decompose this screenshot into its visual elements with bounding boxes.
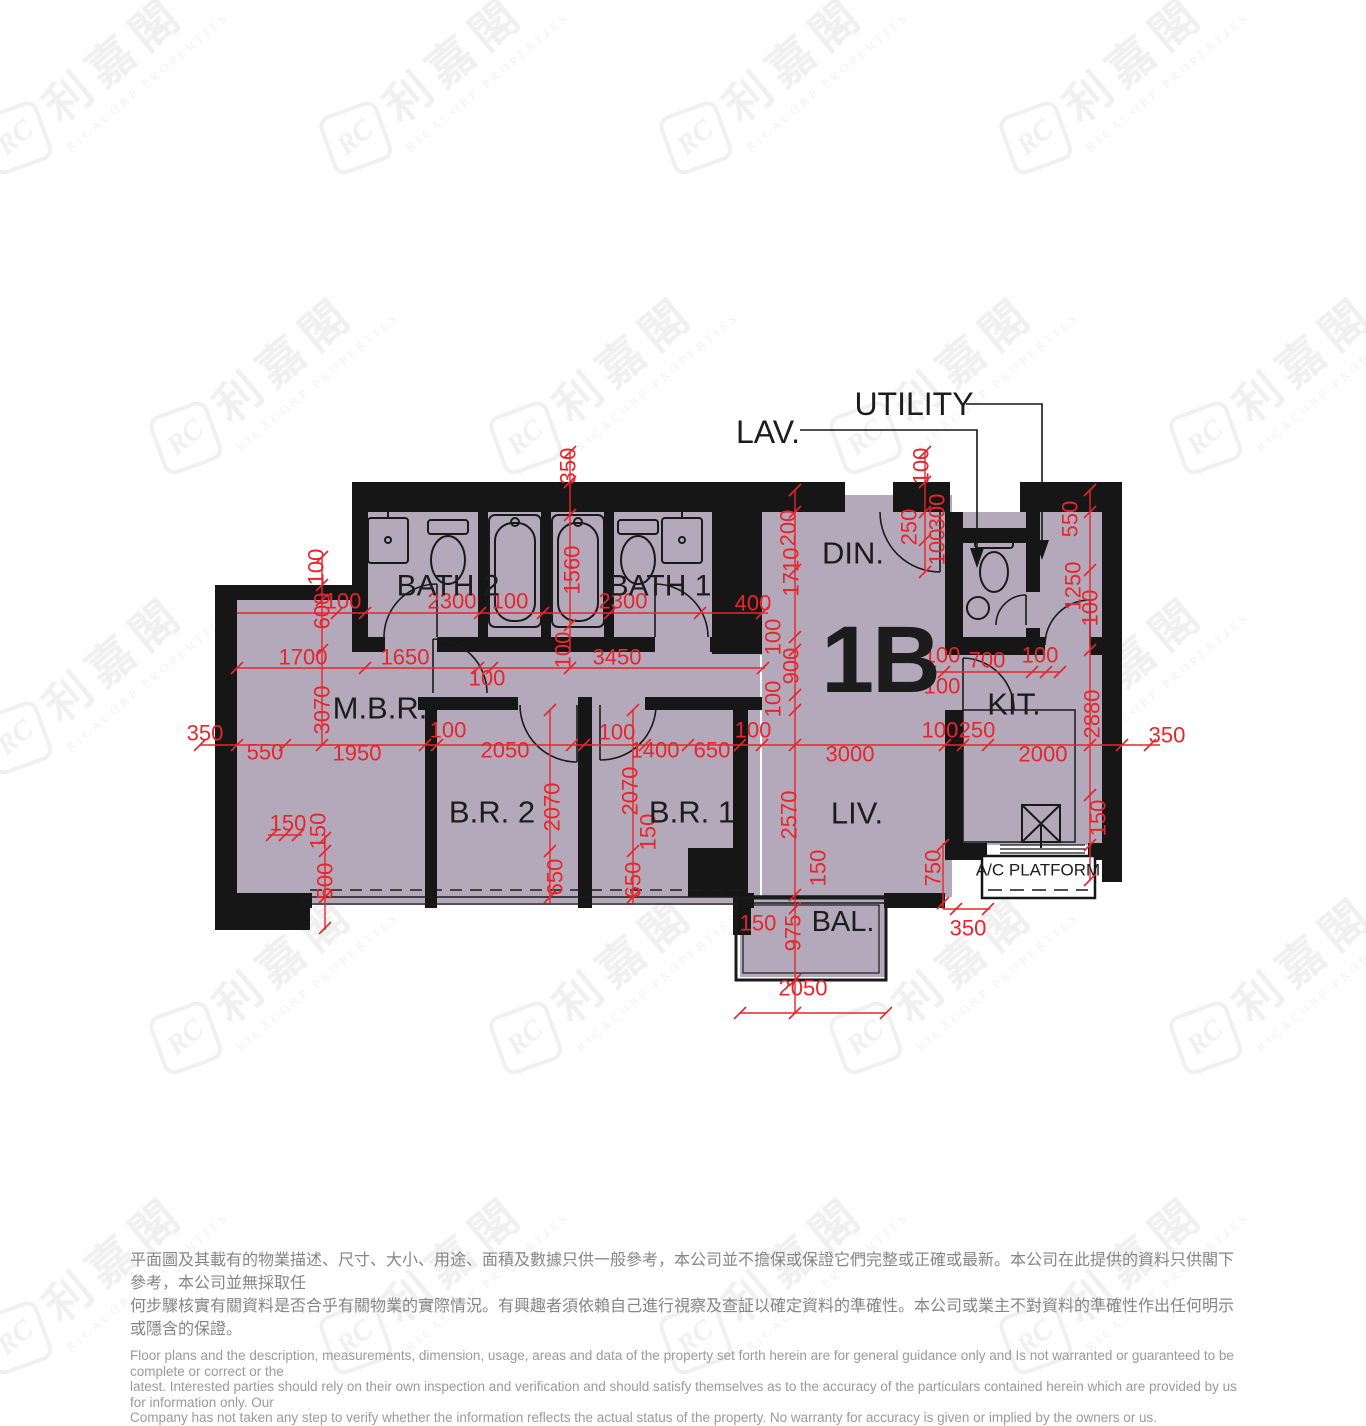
dimension-label: 150 bbox=[1086, 800, 1111, 837]
room-label-br1: B.R. 1 bbox=[649, 795, 735, 830]
dimension-label: 300 bbox=[925, 494, 950, 531]
dimension-label: 150 bbox=[740, 911, 777, 936]
dimension-label: 2050 bbox=[779, 976, 828, 1001]
dimension-label: 150 bbox=[306, 813, 331, 850]
floor-plan: 1002300100230040035015601002001710100300… bbox=[0, 0, 1366, 1366]
dimension-label: 1650 bbox=[381, 645, 430, 670]
dimension-label: 650 bbox=[543, 859, 568, 896]
dimension-label: 2070 bbox=[540, 783, 565, 832]
room-label-lav: LAV. bbox=[736, 414, 800, 450]
dimension-label: 650 bbox=[621, 862, 646, 899]
dimension-label: 2050 bbox=[481, 738, 530, 763]
dimension-label: 975 bbox=[781, 915, 806, 952]
disclaimer: 平面圖及其載有的物業描述、尺寸、大小、用途、面積及數據只供一般參考，本公司並不擔… bbox=[130, 1249, 1248, 1426]
room-label-ac: A/C PLATFORM bbox=[976, 861, 1100, 880]
dimension-label: 650 bbox=[694, 738, 731, 763]
dimension-label: 100 bbox=[922, 718, 959, 743]
dimension-label: 100 bbox=[469, 666, 506, 691]
dimension-label: 100 bbox=[925, 529, 950, 566]
dimension-label: 3000 bbox=[826, 742, 875, 767]
dimension-label: 350 bbox=[950, 916, 987, 941]
dimension-label: 1950 bbox=[333, 741, 382, 766]
floorplan-page: { "unit_label": "1B", "colors": { "floor… bbox=[0, 0, 1366, 1366]
room-label-mbr: M.B.R. bbox=[333, 691, 428, 726]
dimension-label: 3450 bbox=[593, 645, 642, 670]
dimension-label: 550 bbox=[247, 740, 284, 765]
dimension-label: 100 bbox=[430, 718, 467, 743]
dimension-label: 150 bbox=[806, 850, 831, 887]
room-label-din: DIN. bbox=[822, 536, 884, 571]
dimension-label: 1700 bbox=[279, 645, 328, 670]
dimension-label: 350 bbox=[187, 721, 224, 746]
dimension-label: 1560 bbox=[560, 546, 585, 595]
room-label-liv: LIV. bbox=[831, 796, 883, 831]
ac-louvers bbox=[1000, 845, 1085, 853]
room-label-br2: B.R. 2 bbox=[449, 795, 535, 830]
dimension-label: 250 bbox=[897, 509, 922, 546]
dimension-label: 100 bbox=[735, 718, 772, 743]
room-label-utility: UTILITY bbox=[854, 386, 973, 422]
dimension-label: 100 bbox=[1022, 643, 1059, 668]
room-label-kit: KIT. bbox=[987, 687, 1040, 722]
dimension-label: 100 bbox=[1078, 590, 1103, 627]
room-label-bath1: BATH 1 bbox=[609, 570, 712, 603]
dimension-label: 1400 bbox=[631, 738, 680, 763]
dimension-label: 2570 bbox=[777, 791, 802, 840]
disclaimer-en: Floor plans and the description, measure… bbox=[130, 1348, 1248, 1426]
dimension-label: 400 bbox=[735, 591, 772, 616]
dimension-label: 350 bbox=[1149, 723, 1186, 748]
dimension-label: 2880 bbox=[1080, 690, 1105, 739]
room-label-bath2: BATH 2 bbox=[397, 570, 500, 603]
dimension-label: 200 bbox=[776, 510, 801, 547]
dimension-label: 100 bbox=[551, 632, 576, 669]
disclaimer-zh: 平面圖及其載有的物業描述、尺寸、大小、用途、面積及數據只供一般參考，本公司並不擔… bbox=[130, 1249, 1248, 1341]
dimension-label: 100 bbox=[909, 448, 934, 485]
room-label-bal: BAL. bbox=[812, 906, 875, 938]
dimension-label: 550 bbox=[1058, 501, 1083, 538]
dimension-label: 700 bbox=[969, 648, 1006, 673]
dimension-label: 100 bbox=[761, 681, 786, 718]
dimension-label: 1710 bbox=[779, 548, 804, 597]
dimension-label: 2070 bbox=[618, 767, 643, 816]
dimension-label: 350 bbox=[556, 448, 581, 485]
dimension-label: 3070 bbox=[310, 686, 335, 735]
dimension-label: 750 bbox=[921, 850, 946, 887]
dimension-label: 150 bbox=[270, 811, 307, 836]
dimension-label: 900 bbox=[779, 648, 804, 685]
dimension-label: 600 bbox=[310, 593, 335, 630]
room-label-unit: 1B bbox=[821, 607, 938, 713]
dimension-label: 2000 bbox=[1019, 742, 1068, 767]
dimension-label: 500 bbox=[313, 863, 338, 900]
dimension-label: 100 bbox=[304, 549, 329, 586]
